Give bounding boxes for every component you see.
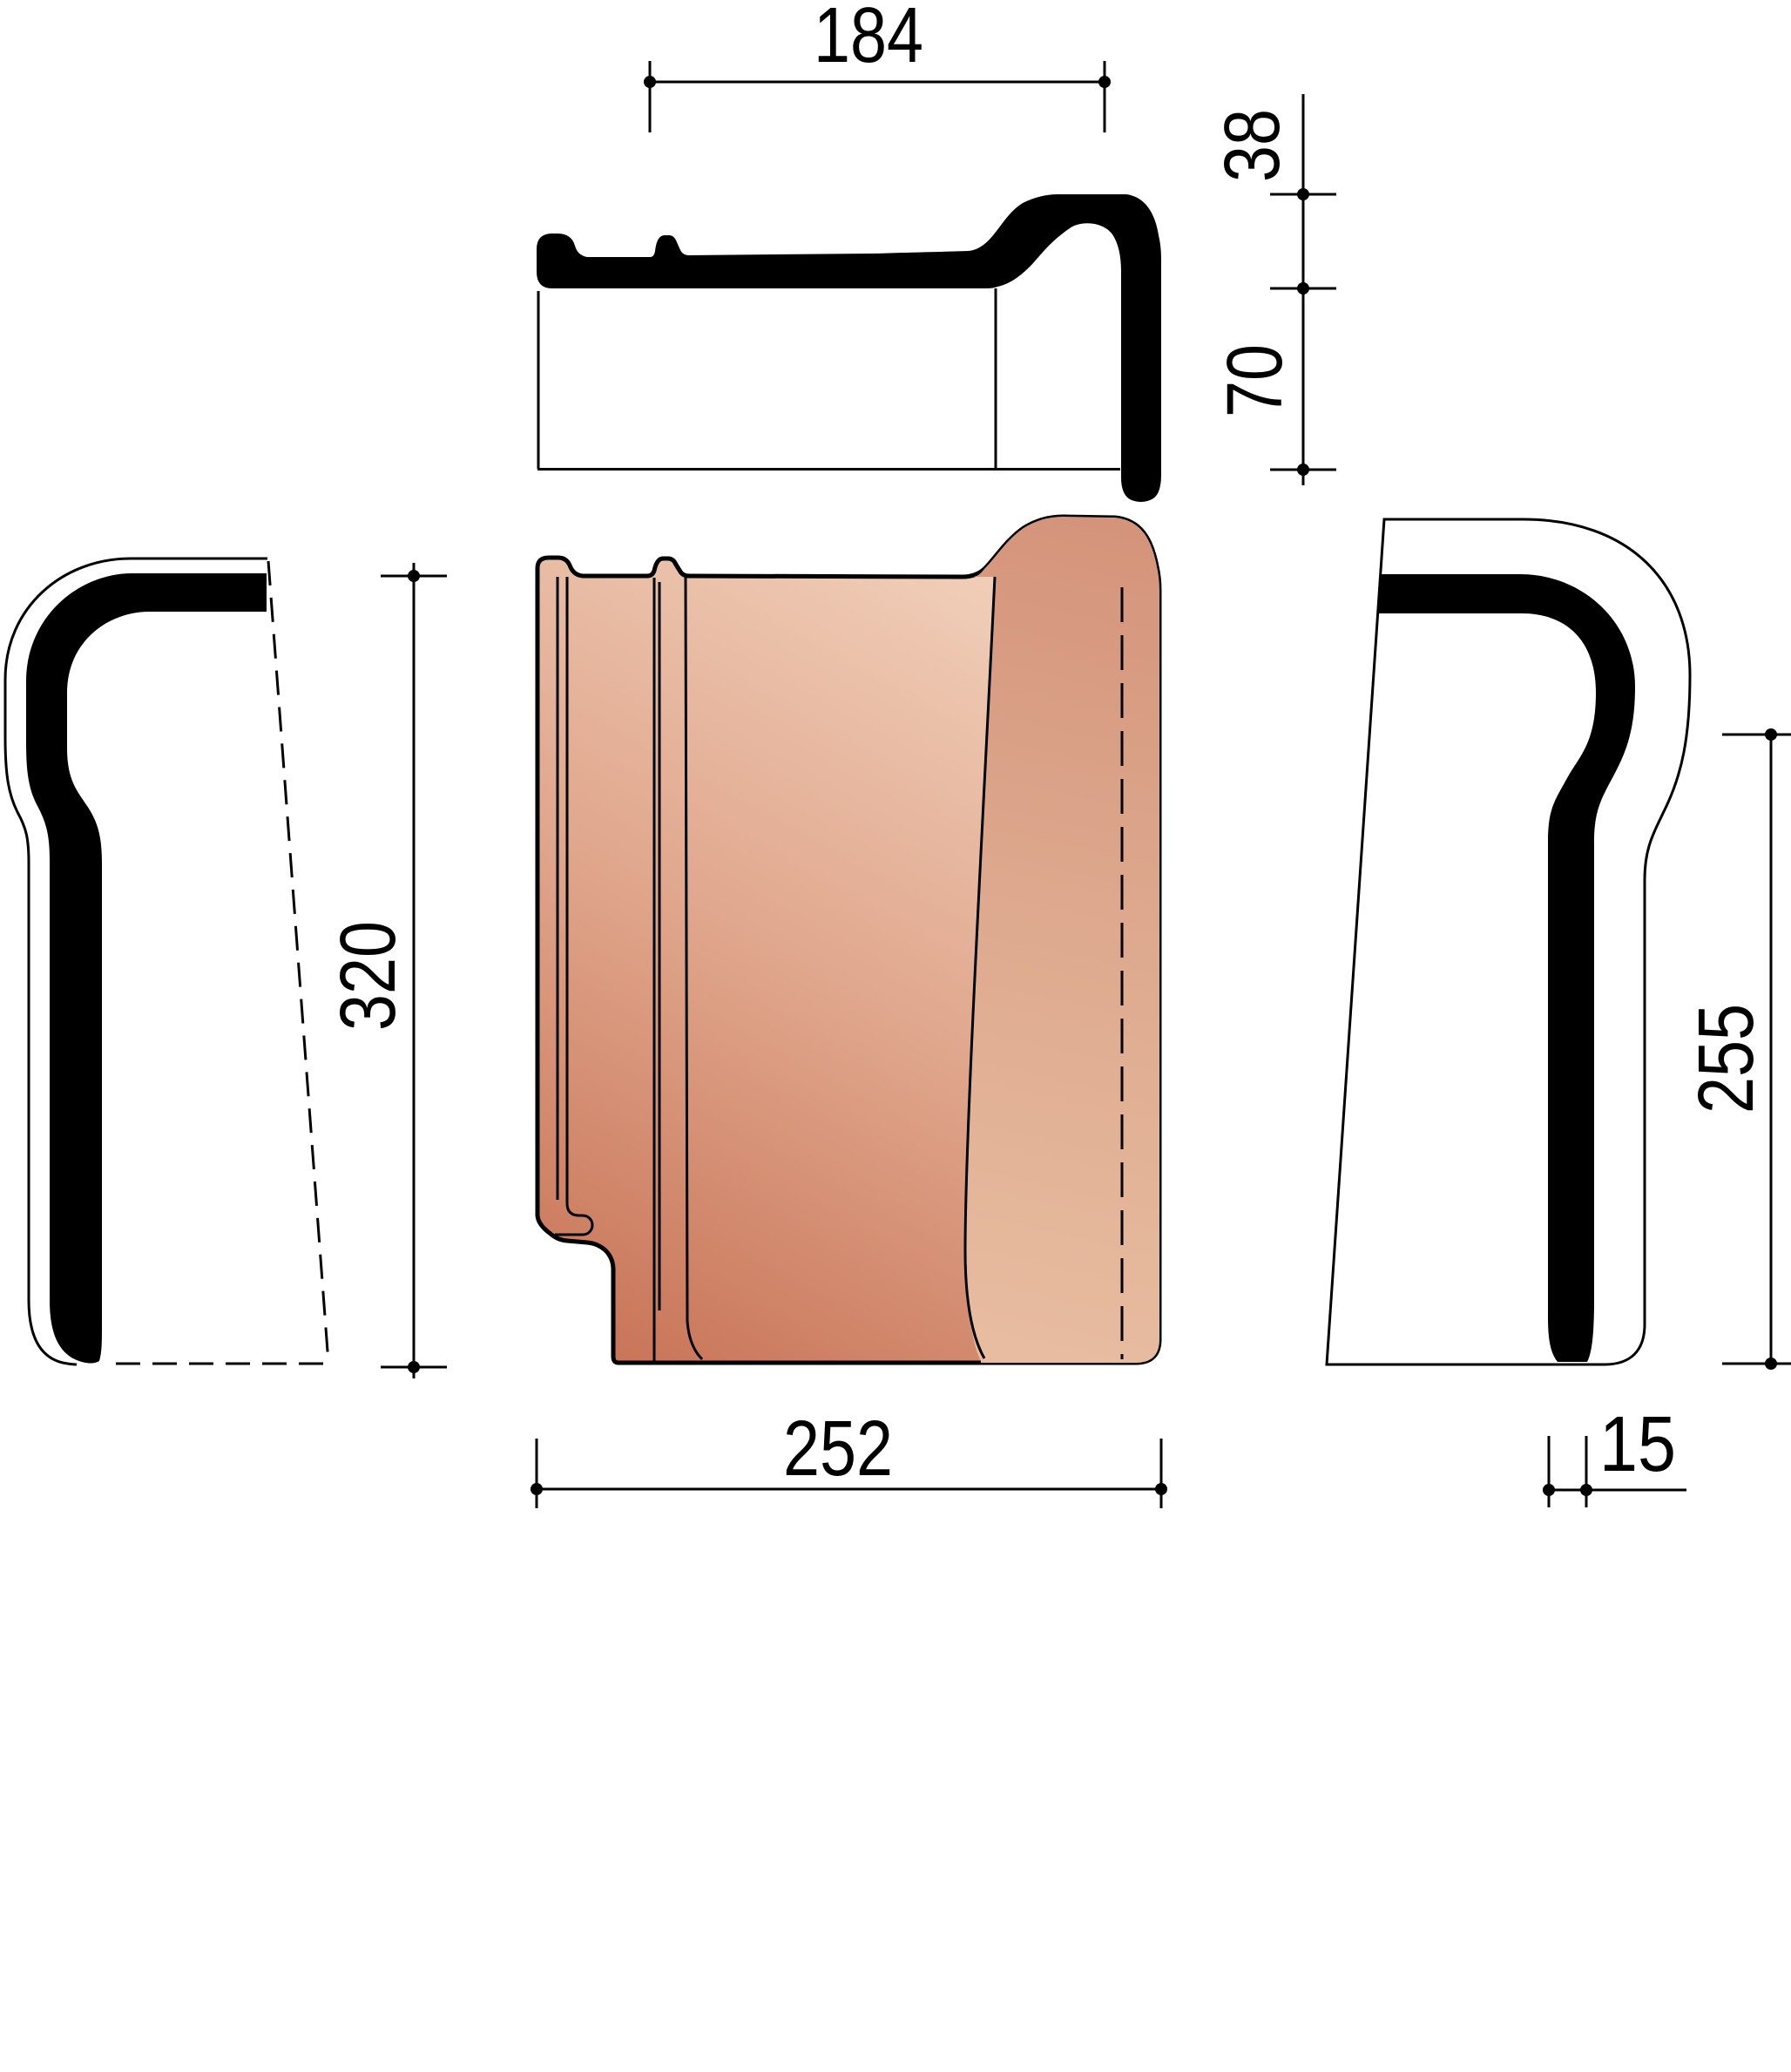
svg-text:320: 320 <box>325 921 412 1031</box>
svg-text:38: 38 <box>1209 109 1296 182</box>
svg-text:70: 70 <box>1212 344 1299 417</box>
svg-text:252: 252 <box>783 1405 893 1493</box>
svg-text:255: 255 <box>1683 1004 1770 1114</box>
svg-text:15: 15 <box>1599 1401 1676 1488</box>
svg-text:184: 184 <box>814 0 923 79</box>
